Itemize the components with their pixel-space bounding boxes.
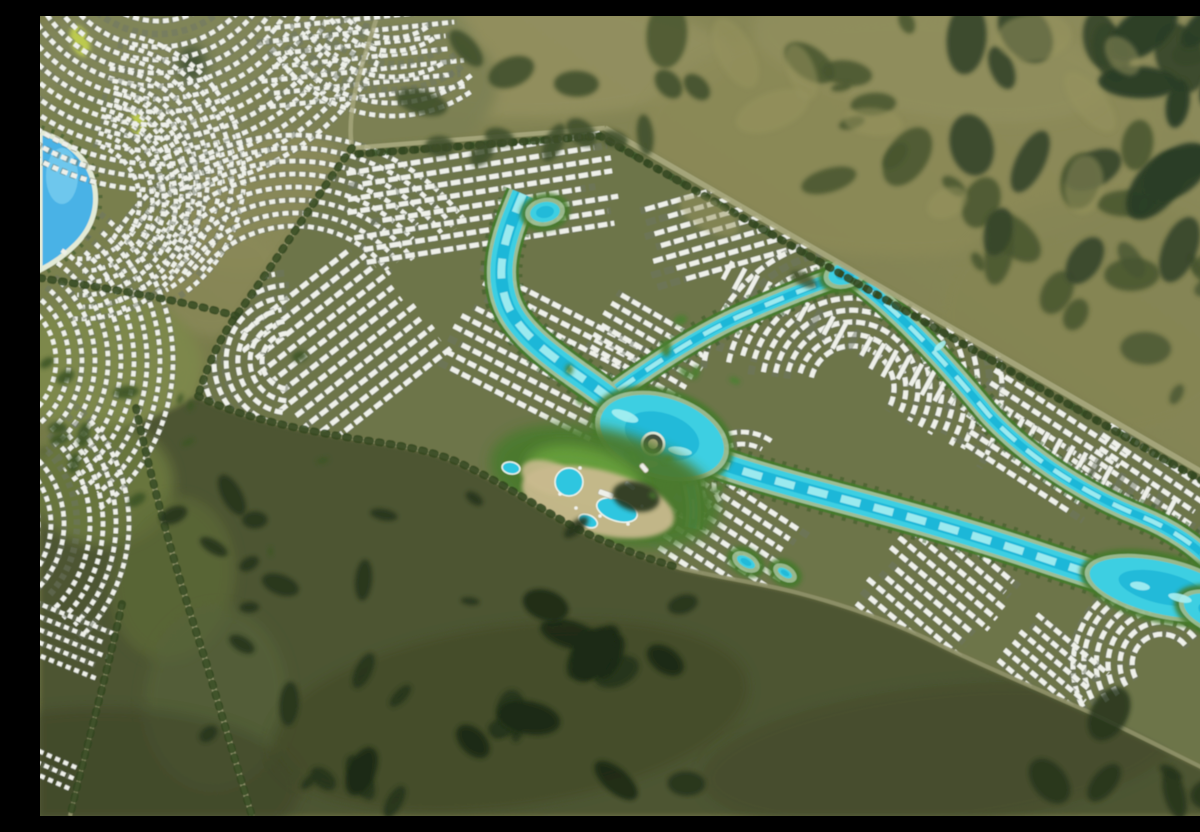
render-canvas <box>40 16 1200 816</box>
aerial-masterplan-render <box>40 16 1200 816</box>
amenity-pool <box>555 468 583 496</box>
cabana-dot <box>578 466 582 470</box>
cabana-dot <box>558 492 562 496</box>
cabana-dot <box>626 522 630 526</box>
cabana-dot <box>598 514 602 518</box>
scene-root <box>40 16 1200 816</box>
cabana-dot <box>574 506 578 510</box>
